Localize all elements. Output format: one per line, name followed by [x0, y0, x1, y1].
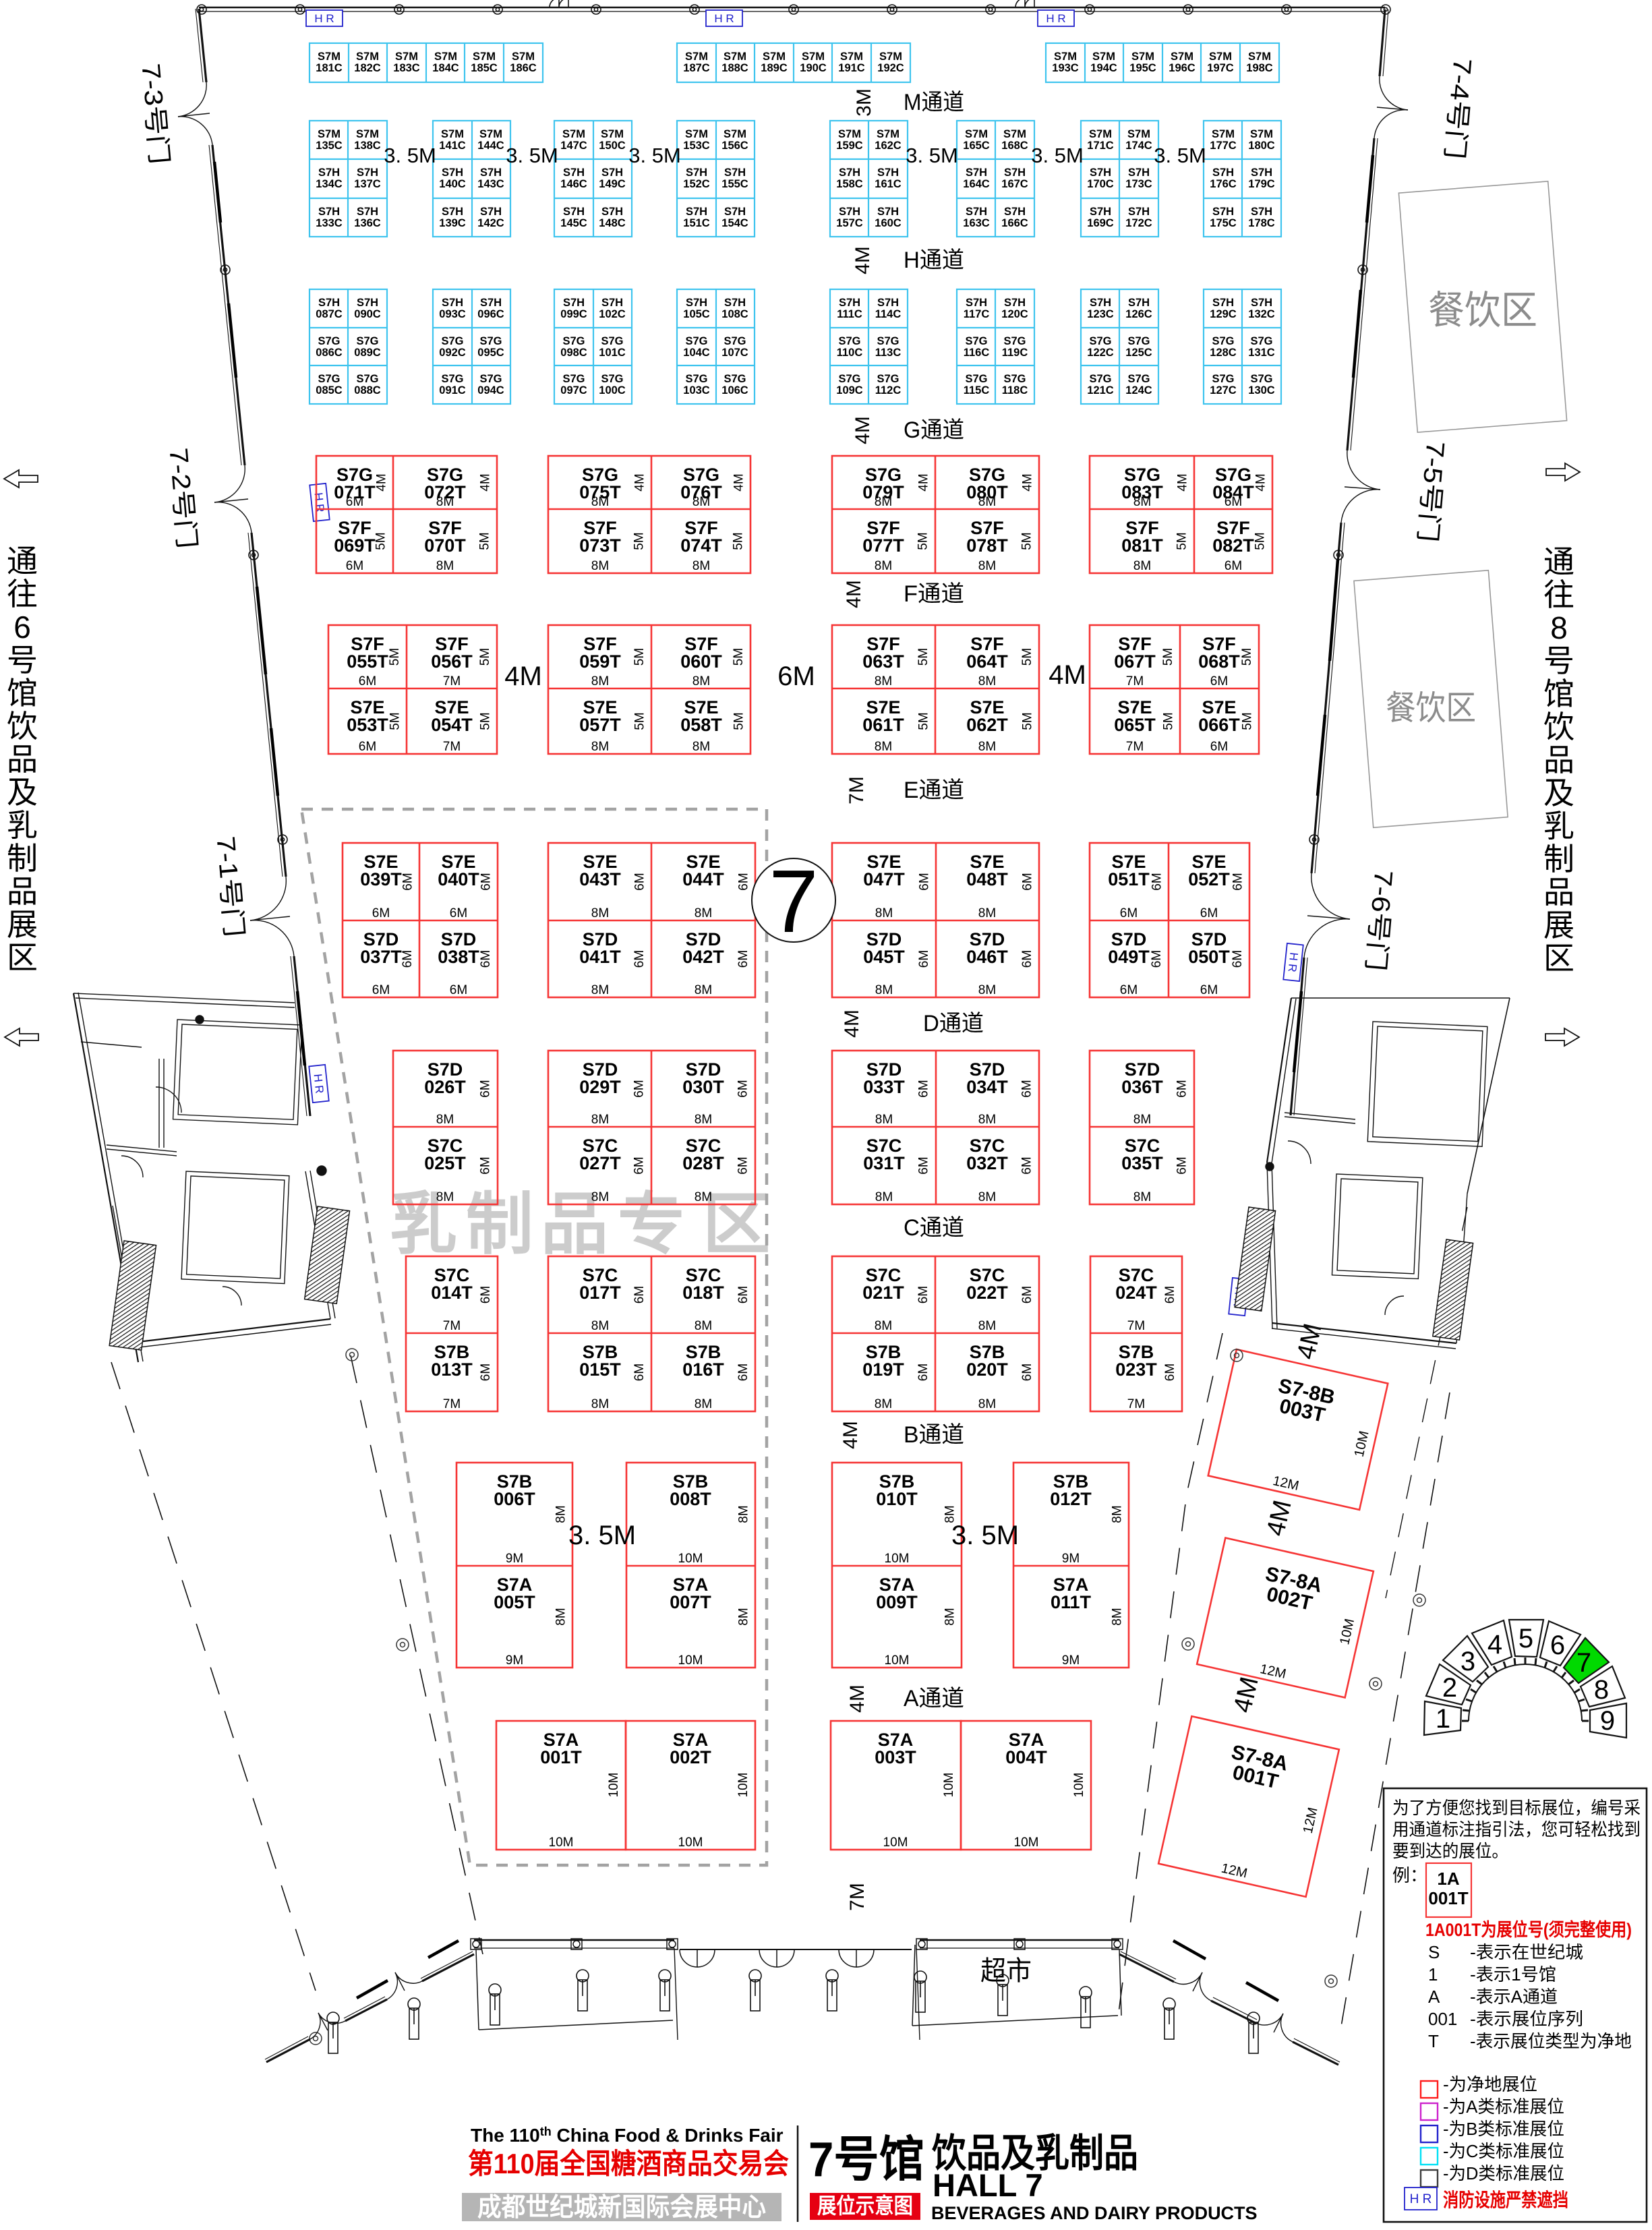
- svg-text:159C: 159C: [836, 140, 863, 152]
- svg-text:197C: 197C: [1207, 62, 1234, 74]
- svg-text:E通道: E通道: [904, 777, 964, 803]
- svg-text:027T: 027T: [579, 1153, 621, 1173]
- svg-text:147C: 147C: [560, 140, 587, 152]
- svg-text:6M: 6M: [917, 1156, 931, 1174]
- svg-text:6M: 6M: [1210, 674, 1228, 688]
- svg-text:H R: H R: [1410, 2192, 1432, 2206]
- svg-text:4M: 4M: [1176, 473, 1190, 491]
- svg-text:S7G: S7G: [1127, 335, 1150, 347]
- svg-text:186C: 186C: [510, 62, 537, 74]
- svg-text:G通道: G通道: [904, 417, 964, 443]
- svg-text:S7G: S7G: [479, 335, 502, 347]
- svg-text:8M: 8M: [978, 983, 996, 997]
- svg-text:015T: 015T: [579, 1359, 621, 1380]
- svg-text:6M: 6M: [346, 495, 363, 509]
- svg-text:4M: 4M: [633, 473, 647, 491]
- svg-text:070T: 070T: [424, 535, 466, 556]
- svg-text:036T: 036T: [1121, 1077, 1163, 1097]
- svg-text:104C: 104C: [683, 347, 710, 359]
- svg-text:053T: 053T: [347, 715, 388, 735]
- svg-text:194C: 194C: [1090, 62, 1117, 74]
- svg-text:S7G: S7G: [1003, 373, 1026, 385]
- svg-text:3. 5M: 3. 5M: [906, 144, 958, 167]
- svg-text:077T: 077T: [862, 535, 904, 556]
- svg-text:6M: 6M: [918, 873, 932, 890]
- svg-text:018T: 018T: [682, 1283, 724, 1303]
- svg-text:8M: 8M: [978, 740, 996, 754]
- svg-text:6: 6: [1550, 1631, 1565, 1660]
- svg-text:-为净地展位: -为净地展位: [1443, 2074, 1537, 2094]
- svg-text:S7H: S7H: [442, 297, 463, 309]
- svg-text:001T: 001T: [1428, 1888, 1468, 1908]
- svg-text:081T: 081T: [1121, 535, 1163, 556]
- svg-text:6M: 6M: [1020, 1156, 1034, 1174]
- svg-text:8M: 8M: [978, 1190, 996, 1204]
- svg-text:113C: 113C: [875, 347, 902, 359]
- svg-text:4M: 4M: [1254, 473, 1268, 491]
- svg-text:6: 6: [13, 610, 31, 645]
- svg-text:T: T: [1428, 2031, 1439, 2051]
- svg-text:112C: 112C: [875, 384, 902, 397]
- svg-text:033T: 033T: [863, 1077, 905, 1097]
- svg-text:S7M: S7M: [601, 128, 624, 140]
- svg-text:1: 1: [1436, 1704, 1450, 1734]
- svg-text:7M: 7M: [846, 776, 868, 804]
- svg-text:S7M: S7M: [838, 128, 861, 140]
- svg-text:S7G: S7G: [685, 373, 707, 385]
- svg-text:-表示A通道: -表示A通道: [1470, 1987, 1558, 2007]
- svg-text:6M: 6M: [1225, 495, 1242, 509]
- svg-text:045T: 045T: [863, 947, 905, 967]
- svg-text:031T: 031T: [863, 1153, 905, 1173]
- svg-text:127C: 127C: [1210, 384, 1237, 397]
- svg-text:-为A类标准展位: -为A类标准展位: [1443, 2096, 1564, 2117]
- svg-text:展位示意图: 展位示意图: [817, 2194, 913, 2218]
- svg-text:S7G: S7G: [562, 335, 585, 347]
- svg-text:8M: 8M: [875, 674, 892, 688]
- svg-text:073T: 073T: [579, 535, 621, 556]
- svg-text:S7G: S7G: [601, 373, 623, 385]
- svg-text:023T: 023T: [1115, 1359, 1157, 1380]
- svg-text:S7H: S7H: [839, 297, 860, 309]
- svg-text:017T: 017T: [579, 1283, 621, 1303]
- svg-text:175C: 175C: [1210, 217, 1237, 229]
- svg-text:5M: 5M: [916, 532, 931, 550]
- svg-text:S7M: S7M: [441, 128, 464, 140]
- svg-text:S7H: S7H: [1004, 206, 1026, 218]
- svg-text:8M: 8M: [978, 1319, 996, 1333]
- svg-text:9M: 9M: [506, 1552, 523, 1566]
- svg-text:171C: 171C: [1087, 140, 1114, 152]
- svg-text:10M: 10M: [885, 1653, 910, 1668]
- svg-text:8M: 8M: [695, 1113, 712, 1127]
- svg-text:餐饮区: 餐饮区: [1386, 689, 1476, 727]
- svg-text:5M: 5M: [1161, 648, 1175, 666]
- svg-text:6M: 6M: [479, 950, 493, 968]
- svg-text:S7H: S7H: [686, 297, 707, 309]
- svg-text:094C: 094C: [477, 384, 504, 397]
- svg-text:4M: 4M: [732, 473, 746, 491]
- svg-text:饮: 饮: [7, 709, 38, 744]
- svg-text:S7H: S7H: [442, 167, 463, 179]
- svg-text:8M: 8M: [875, 983, 893, 997]
- svg-text:010T: 010T: [876, 1489, 918, 1509]
- svg-text:9M: 9M: [1062, 1552, 1080, 1566]
- svg-text:155C: 155C: [721, 178, 748, 190]
- svg-text:6M: 6M: [372, 906, 390, 920]
- svg-text:饮: 饮: [1543, 709, 1574, 744]
- svg-text:要到达的展位。: 要到达的展位。: [1392, 1841, 1508, 1861]
- svg-text:8M: 8M: [591, 495, 609, 509]
- svg-text:132C: 132C: [1248, 308, 1275, 320]
- svg-text:025T: 025T: [424, 1153, 466, 1173]
- svg-text:6M: 6M: [372, 983, 390, 997]
- svg-text:7M: 7M: [1127, 1319, 1145, 1333]
- svg-text:056T: 056T: [431, 651, 473, 672]
- svg-text:S7M: S7M: [562, 128, 585, 140]
- svg-text:S7G: S7G: [1212, 373, 1234, 385]
- svg-text:054T: 054T: [431, 715, 473, 735]
- svg-text:6M: 6M: [736, 1080, 750, 1097]
- svg-text:6M: 6M: [736, 1363, 750, 1381]
- svg-text:S7M: S7M: [724, 51, 746, 63]
- svg-text:115C: 115C: [964, 384, 990, 397]
- svg-text:162C: 162C: [875, 140, 902, 152]
- svg-text:S7H: S7H: [686, 206, 707, 218]
- svg-text:S7M: S7M: [1003, 128, 1026, 140]
- svg-text:S7G: S7G: [877, 335, 899, 347]
- svg-text:S7H: S7H: [357, 297, 378, 309]
- svg-text:S7H: S7H: [1128, 297, 1150, 309]
- svg-text:-表示展位序列: -表示展位序列: [1470, 2009, 1583, 2029]
- svg-text:195C: 195C: [1129, 62, 1156, 74]
- svg-text:092C: 092C: [439, 347, 466, 359]
- svg-text:8M: 8M: [1133, 495, 1151, 509]
- svg-text:号: 号: [7, 643, 38, 678]
- svg-text:148C: 148C: [599, 217, 626, 229]
- svg-text:S7M: S7M: [685, 51, 708, 63]
- svg-text:012T: 012T: [1050, 1489, 1092, 1509]
- svg-text:020T: 020T: [966, 1359, 1008, 1380]
- svg-text:041T: 041T: [579, 947, 621, 967]
- svg-text:8M: 8M: [591, 1190, 609, 1204]
- svg-text:6M: 6M: [1120, 906, 1138, 920]
- svg-text:8M: 8M: [695, 1319, 712, 1333]
- svg-text:4M: 4M: [846, 1684, 868, 1713]
- svg-text:005T: 005T: [494, 1592, 535, 1612]
- svg-text:S7H: S7H: [601, 297, 623, 309]
- svg-text:1A: 1A: [1437, 1869, 1459, 1889]
- svg-text:165C: 165C: [963, 140, 990, 152]
- svg-text:8M: 8M: [943, 1608, 957, 1625]
- svg-text:展: 展: [7, 907, 38, 942]
- svg-text:8M: 8M: [692, 559, 710, 573]
- svg-text:8M: 8M: [695, 983, 712, 997]
- svg-text:H R: H R: [312, 1073, 326, 1094]
- svg-text:S7M: S7M: [840, 51, 863, 63]
- svg-text:111C: 111C: [837, 308, 862, 320]
- svg-text:8M: 8M: [875, 740, 892, 754]
- svg-text:往: 往: [1543, 577, 1574, 612]
- svg-text:178C: 178C: [1248, 217, 1275, 229]
- svg-text:074T: 074T: [680, 535, 722, 556]
- svg-text:057T: 057T: [579, 715, 621, 735]
- svg-text:106C: 106C: [721, 384, 748, 397]
- svg-text:156C: 156C: [721, 140, 748, 152]
- svg-text:8M: 8M: [591, 1319, 609, 1333]
- svg-text:H R: H R: [314, 12, 334, 25]
- svg-text:024T: 024T: [1115, 1283, 1157, 1303]
- svg-text:6M: 6M: [1225, 559, 1242, 573]
- svg-text:5M: 5M: [1020, 532, 1034, 550]
- svg-text:8M: 8M: [591, 674, 609, 688]
- svg-text:3. 5M: 3. 5M: [506, 144, 558, 167]
- svg-text:6M: 6M: [1020, 1286, 1034, 1303]
- svg-text:S7M: S7M: [879, 51, 902, 63]
- svg-text:5M: 5M: [1020, 648, 1034, 666]
- svg-text:134C: 134C: [316, 178, 343, 190]
- svg-text:为了方便您找到目标展位，编号采: 为了方便您找到目标展位，编号采: [1392, 1798, 1641, 1818]
- svg-text:013T: 013T: [431, 1359, 473, 1380]
- svg-text:4: 4: [1487, 1630, 1502, 1660]
- svg-text:014T: 014T: [431, 1283, 473, 1303]
- svg-text:6M: 6M: [346, 559, 363, 573]
- svg-text:154C: 154C: [721, 217, 748, 229]
- svg-text:078T: 078T: [966, 535, 1008, 556]
- svg-text:C通道: C通道: [904, 1215, 964, 1241]
- svg-text:S7H: S7H: [724, 297, 746, 309]
- svg-text:088C: 088C: [354, 384, 381, 397]
- svg-text:5M: 5M: [732, 532, 746, 550]
- svg-text:6M: 6M: [632, 1286, 647, 1303]
- svg-text:061T: 061T: [862, 715, 904, 735]
- svg-text:101C: 101C: [599, 347, 626, 359]
- svg-text:5M: 5M: [388, 648, 402, 666]
- svg-text:110C: 110C: [837, 347, 863, 359]
- svg-text:040T: 040T: [438, 869, 479, 889]
- svg-text:001T: 001T: [540, 1747, 582, 1767]
- svg-text:S7G: S7G: [441, 373, 463, 385]
- svg-text:019T: 019T: [862, 1359, 904, 1380]
- svg-text:S7M: S7M: [877, 128, 899, 140]
- svg-text:S7H: S7H: [318, 167, 340, 179]
- svg-text:S7M: S7M: [724, 128, 746, 140]
- svg-text:8M: 8M: [436, 1113, 454, 1127]
- svg-text:4M: 4M: [1049, 660, 1086, 690]
- svg-text:6M: 6M: [479, 1286, 493, 1303]
- svg-text:042T: 042T: [682, 947, 724, 967]
- svg-text:8M: 8M: [436, 559, 454, 573]
- svg-text:7: 7: [769, 852, 818, 951]
- svg-text:087C: 087C: [316, 308, 343, 320]
- svg-text:167C: 167C: [1001, 178, 1028, 190]
- svg-text:105C: 105C: [683, 308, 710, 320]
- svg-text:198C: 198C: [1246, 62, 1273, 74]
- svg-text:185C: 185C: [471, 62, 498, 74]
- svg-text:S7G: S7G: [965, 335, 987, 347]
- svg-text:S7M: S7M: [473, 51, 496, 63]
- svg-text:A通道: A通道: [904, 1686, 964, 1711]
- svg-text:011T: 011T: [1051, 1592, 1092, 1612]
- svg-text:090C: 090C: [354, 308, 381, 320]
- svg-text:026T: 026T: [424, 1077, 466, 1097]
- svg-text:052T: 052T: [1188, 869, 1230, 889]
- svg-text:S: S: [1428, 1942, 1440, 1962]
- svg-text:6M: 6M: [479, 873, 494, 890]
- svg-text:179C: 179C: [1248, 178, 1275, 190]
- svg-text:3. 5M: 3. 5M: [1031, 144, 1084, 167]
- svg-text:137C: 137C: [354, 178, 381, 190]
- svg-text:区: 区: [1543, 941, 1574, 976]
- svg-text:餐饮区: 餐饮区: [1428, 289, 1537, 332]
- svg-text:142C: 142C: [477, 217, 504, 229]
- svg-text:S7H: S7H: [1090, 167, 1111, 179]
- svg-text:A: A: [1428, 1987, 1440, 2007]
- svg-text:4M: 4M: [843, 580, 865, 608]
- svg-text:124C: 124C: [1125, 384, 1152, 397]
- svg-text:8M: 8M: [1111, 1608, 1125, 1625]
- svg-text:H R: H R: [1046, 12, 1065, 25]
- svg-text:S7M: S7M: [1250, 128, 1273, 140]
- svg-text:055T: 055T: [347, 651, 388, 672]
- svg-text:123C: 123C: [1087, 308, 1114, 320]
- svg-text:S7M: S7M: [1127, 128, 1150, 140]
- svg-text:130C: 130C: [1248, 384, 1275, 397]
- svg-text:6M: 6M: [632, 950, 647, 968]
- svg-text:182C: 182C: [354, 62, 381, 74]
- svg-text:6M: 6M: [916, 1363, 931, 1381]
- svg-text:059T: 059T: [579, 651, 621, 672]
- svg-text:3. 5M: 3. 5M: [384, 144, 436, 167]
- svg-text:6M: 6M: [916, 1286, 931, 1303]
- svg-text:S7H: S7H: [1251, 206, 1272, 218]
- svg-text:135C: 135C: [316, 140, 343, 152]
- svg-text:6M: 6M: [479, 1080, 493, 1097]
- svg-text:114C: 114C: [875, 308, 902, 320]
- svg-text:S7M: S7M: [1212, 128, 1235, 140]
- svg-text:用通道标注指引法，您可轻松找到: 用通道标注指引法，您可轻松找到: [1392, 1819, 1641, 1840]
- svg-text:S7M: S7M: [356, 51, 379, 63]
- svg-text:S7M: S7M: [1248, 51, 1271, 63]
- svg-text:9: 9: [1600, 1706, 1615, 1736]
- svg-text:展: 展: [1543, 908, 1574, 943]
- svg-text:S7H: S7H: [966, 167, 987, 179]
- svg-text:121C: 121C: [1087, 384, 1114, 397]
- svg-text:6M: 6M: [479, 1363, 493, 1381]
- svg-text:8M: 8M: [1133, 559, 1151, 573]
- svg-text:098C: 098C: [560, 347, 587, 359]
- svg-text:3: 3: [1461, 1647, 1475, 1676]
- svg-text:093C: 093C: [439, 308, 466, 320]
- svg-text:4M: 4M: [839, 1421, 862, 1449]
- svg-text:173C: 173C: [1125, 178, 1152, 190]
- svg-text:6M: 6M: [1175, 1156, 1189, 1174]
- svg-text:8M: 8M: [875, 1397, 892, 1411]
- svg-text:6M: 6M: [737, 873, 751, 890]
- svg-text:区: 区: [703, 1187, 770, 1262]
- svg-text:S7M: S7M: [1131, 51, 1154, 63]
- svg-text:097C: 097C: [560, 384, 587, 397]
- svg-text:S7H: S7H: [357, 167, 378, 179]
- svg-text:118C: 118C: [1002, 384, 1028, 397]
- svg-text:S7H: S7H: [563, 206, 585, 218]
- svg-text:163C: 163C: [963, 217, 990, 229]
- svg-text:6M: 6M: [1200, 906, 1218, 920]
- svg-text:8M: 8M: [695, 1190, 712, 1204]
- svg-text:6M: 6M: [1020, 950, 1034, 968]
- svg-text:S7M: S7M: [763, 51, 786, 63]
- svg-text:067T: 067T: [1114, 651, 1156, 672]
- svg-text:138C: 138C: [354, 140, 381, 152]
- svg-text:193C: 193C: [1052, 62, 1079, 74]
- svg-text:9M: 9M: [1062, 1653, 1080, 1668]
- svg-text:5M: 5M: [1241, 712, 1255, 730]
- svg-text:品: 品: [1543, 742, 1574, 777]
- svg-text:S7G: S7G: [724, 373, 746, 385]
- svg-text:5M: 5M: [478, 532, 492, 550]
- svg-text:S7G: S7G: [1003, 335, 1026, 347]
- svg-text:S7H: S7H: [1251, 167, 1272, 179]
- svg-text:119C: 119C: [1002, 347, 1028, 359]
- svg-text:131C: 131C: [1248, 347, 1275, 359]
- svg-text:069T: 069T: [334, 535, 376, 556]
- svg-text:S7G: S7G: [356, 373, 378, 385]
- svg-text:8M: 8M: [875, 495, 892, 509]
- svg-text:6M: 6M: [736, 1286, 750, 1303]
- svg-text:S7M: S7M: [356, 128, 379, 140]
- svg-text:172C: 172C: [1125, 217, 1152, 229]
- svg-text:8M: 8M: [978, 906, 996, 920]
- svg-text:S7G: S7G: [1089, 373, 1111, 385]
- svg-text:S7M: S7M: [965, 128, 988, 140]
- svg-text:B通道: B通道: [904, 1422, 964, 1448]
- svg-text:S7H: S7H: [601, 206, 623, 218]
- svg-text:8M: 8M: [692, 740, 710, 754]
- svg-text:10M: 10M: [1072, 1773, 1086, 1798]
- svg-text:S7H: S7H: [724, 206, 746, 218]
- svg-text:049T: 049T: [1108, 947, 1150, 967]
- svg-text:006T: 006T: [494, 1489, 535, 1509]
- svg-text:152C: 152C: [683, 178, 710, 190]
- svg-text:8M: 8M: [591, 983, 609, 997]
- svg-text:089C: 089C: [354, 347, 381, 359]
- svg-text:M通道: M通道: [904, 90, 964, 115]
- svg-text:4M: 4M: [852, 246, 874, 274]
- svg-text:-表示展位类型为净地: -表示展位类型为净地: [1470, 2031, 1632, 2051]
- svg-text:146C: 146C: [560, 178, 587, 190]
- svg-text:7M: 7M: [443, 674, 461, 688]
- svg-text:7M: 7M: [443, 1397, 461, 1411]
- svg-text:S7G: S7G: [601, 335, 623, 347]
- svg-text:S7H: S7H: [686, 167, 707, 179]
- svg-text:043T: 043T: [579, 869, 621, 889]
- svg-text:8M: 8M: [591, 1113, 609, 1127]
- svg-text:5: 5: [1518, 1624, 1533, 1653]
- svg-text:乳: 乳: [1543, 809, 1574, 844]
- svg-text:制: 制: [466, 1187, 533, 1262]
- svg-text:第110届全国糖酒商品交易会: 第110届全国糖酒商品交易会: [468, 2148, 789, 2179]
- svg-text:S7H: S7H: [1212, 297, 1234, 309]
- svg-text:116C: 116C: [964, 347, 990, 359]
- svg-text:028T: 028T: [682, 1153, 724, 1173]
- svg-text:7M: 7M: [443, 740, 461, 754]
- svg-text:S7G: S7G: [479, 373, 502, 385]
- svg-text:8M: 8M: [875, 1319, 892, 1333]
- svg-text:160C: 160C: [875, 217, 902, 229]
- svg-text:184C: 184C: [432, 62, 459, 74]
- svg-text:151C: 151C: [683, 217, 710, 229]
- svg-text:6M: 6M: [1020, 1080, 1034, 1097]
